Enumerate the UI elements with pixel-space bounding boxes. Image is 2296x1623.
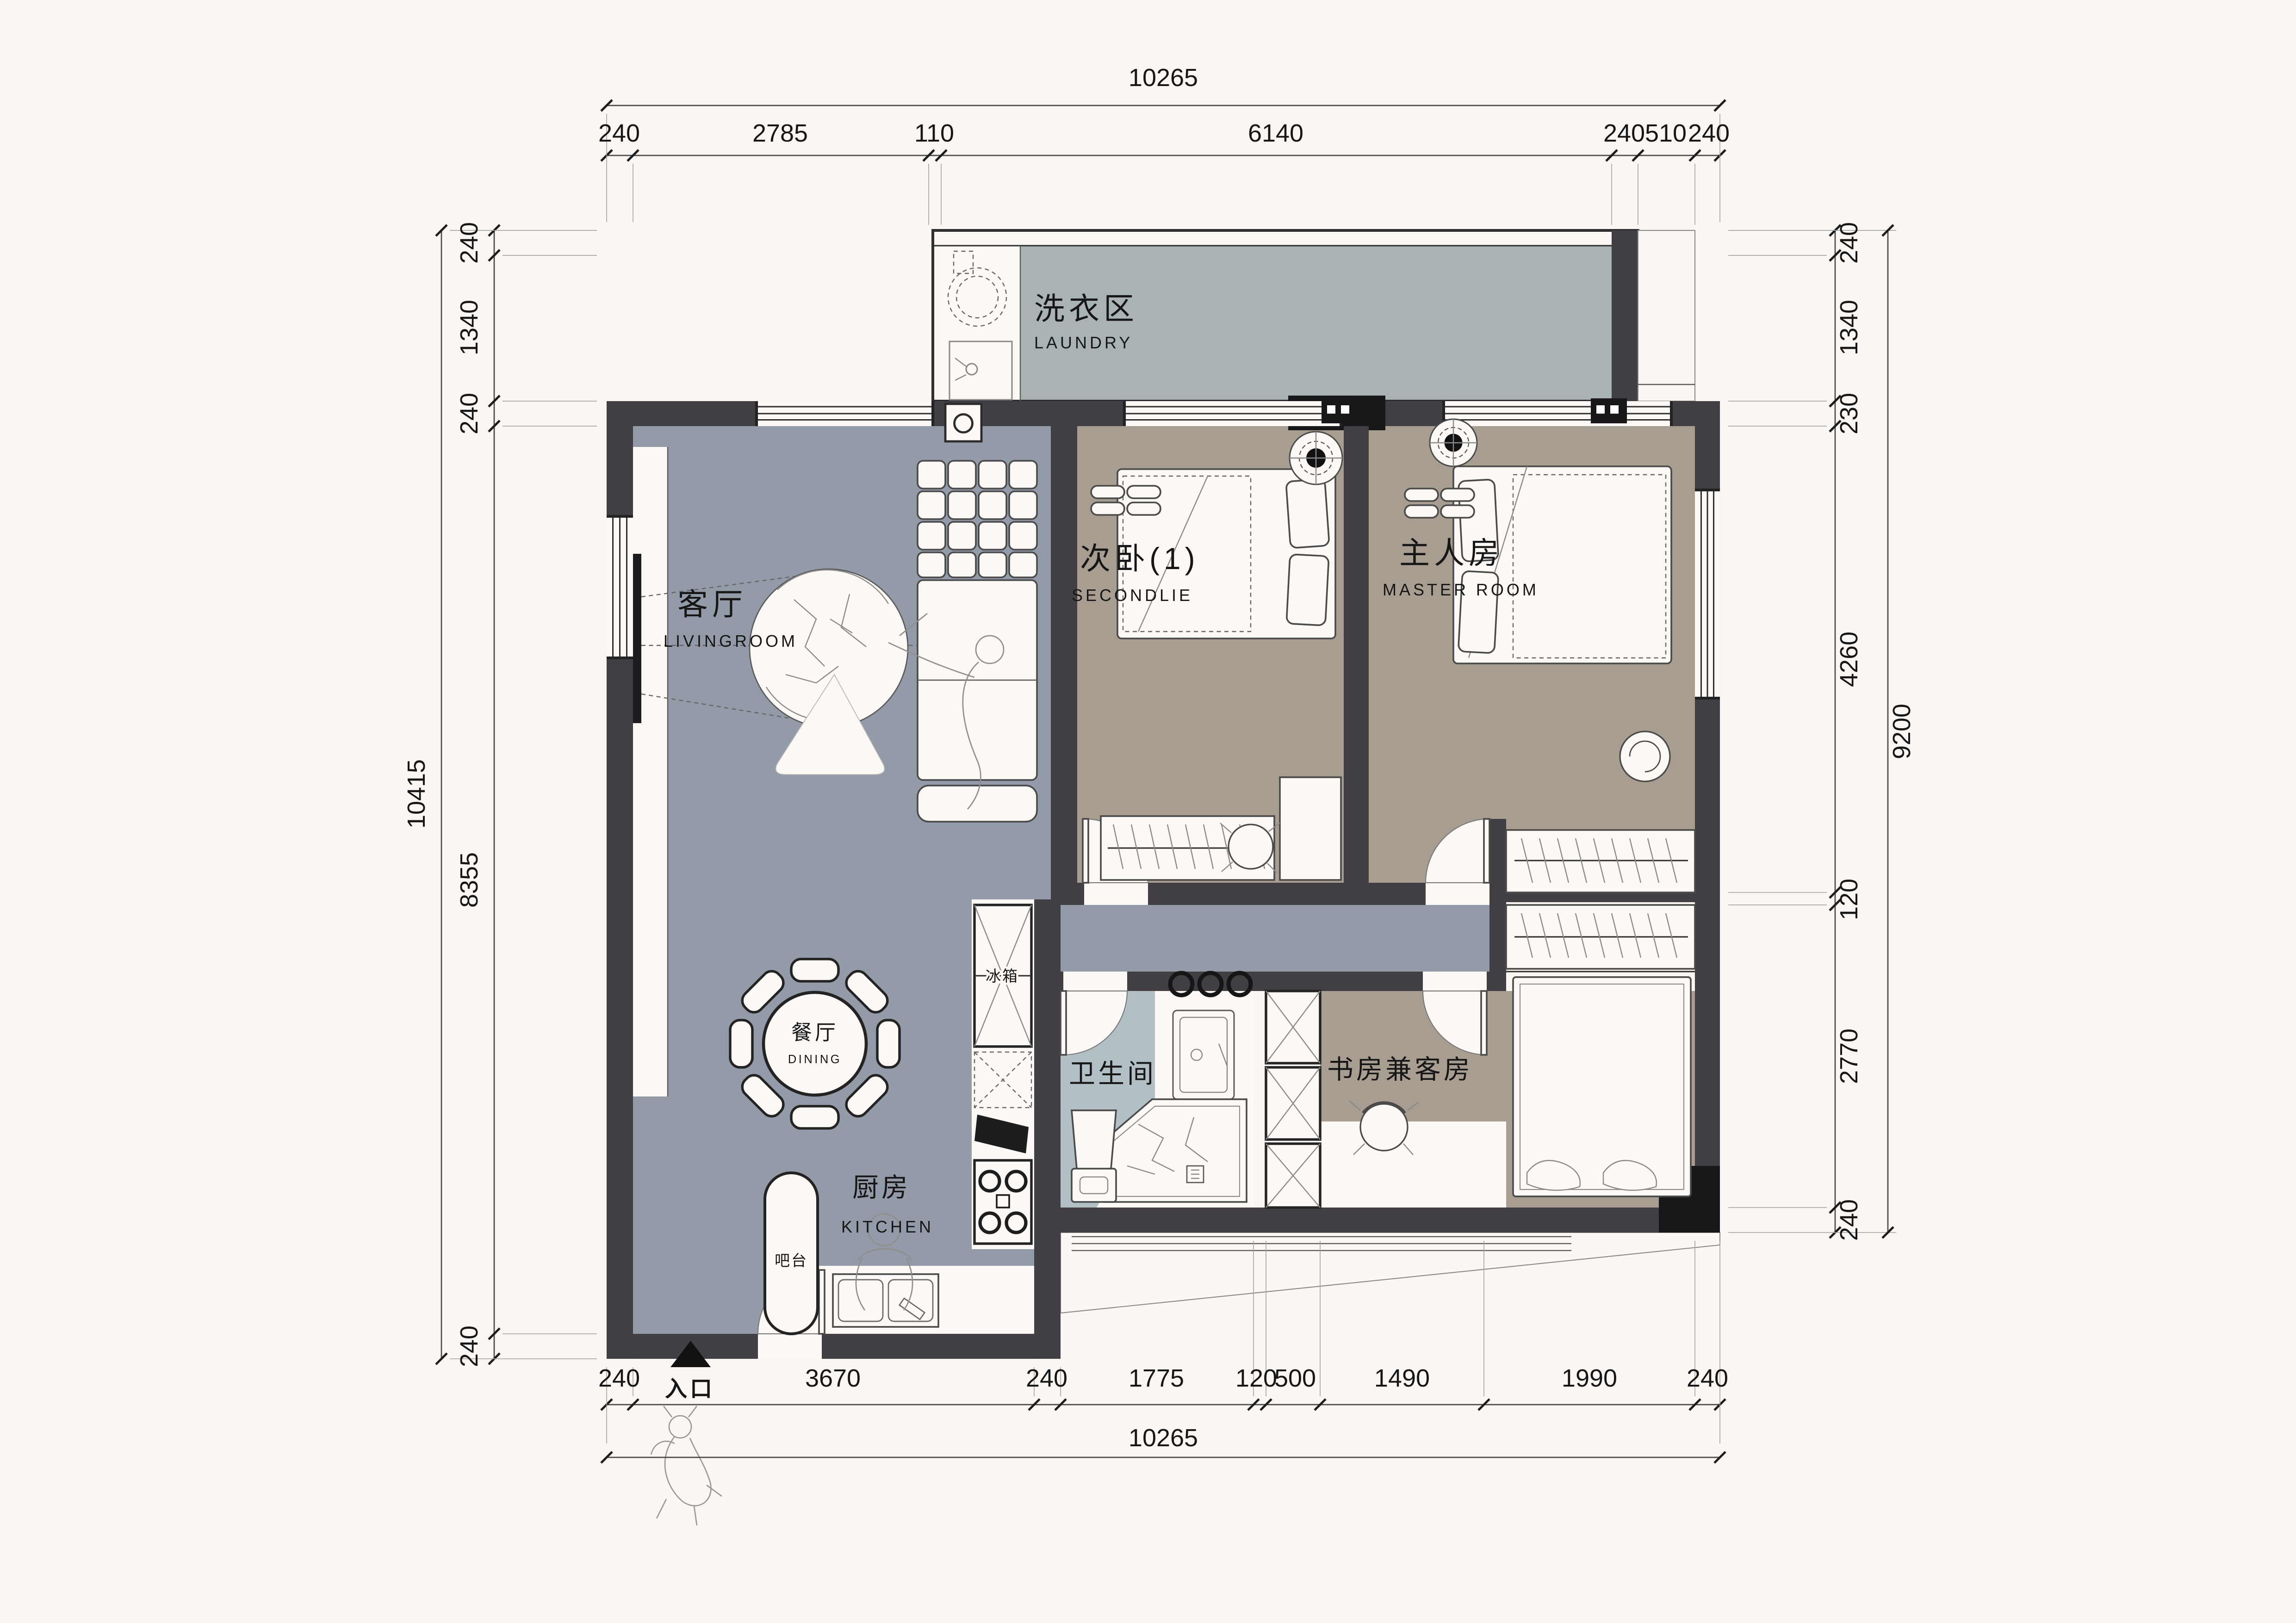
study-label: 书房兼客房 [1327, 1055, 1473, 1084]
bottom-seg-2: 240 [1026, 1364, 1067, 1392]
left-overall-value: 10415 [403, 759, 430, 829]
second-bedroom-label-en: SECONDLIE [1072, 586, 1193, 605]
study-desk-zone [1320, 1121, 1506, 1208]
entrance-group [651, 1341, 722, 1525]
right-seg-5: 2770 [1835, 1028, 1863, 1084]
top-seg-0: 240 [598, 119, 640, 147]
entrance-opening [758, 1334, 822, 1359]
second-bedroom-door-leaf [1083, 819, 1088, 883]
wall-vent-box-1 [1322, 398, 1358, 423]
bottom-seg-1: 3670 [805, 1364, 861, 1392]
bottom-left-wall [607, 1334, 1061, 1359]
terrace [1061, 1233, 1720, 1313]
fridge-label: 冰箱 [986, 967, 1019, 985]
bottom-seg-4: 120 [1235, 1364, 1277, 1392]
bar-label: 吧台 [775, 1252, 808, 1269]
dimensions-left: 10415 240 1340 240 8355 240 [403, 222, 597, 1367]
dimensions-top: 10265 240 2785 110 6140 240 510 240 [598, 64, 1730, 225]
second-bedroom-door-opening [1084, 883, 1148, 905]
vent-square-2b [1610, 405, 1619, 414]
hallway-tall-cabinet [1266, 991, 1320, 1208]
kitchen-sink [833, 1274, 938, 1327]
floor-plan-drawing: 洗衣区 LAUNDRY 客厅 LIVINGROOM 次卧(1) SECONDLI… [0, 0, 2296, 1623]
dimensions-right: 240 1340 230 4260 120 2770 240 9200 [1728, 222, 1916, 1241]
vent-square-2a [1596, 405, 1605, 414]
right-seg-0: 240 [1835, 222, 1863, 264]
bottom-seg-7: 1990 [1562, 1364, 1617, 1392]
laundry-right-wall [1612, 230, 1638, 401]
bottom-seg-3: 1775 [1129, 1364, 1184, 1392]
vent-square-1b [1341, 405, 1349, 414]
right-overall-value: 9200 [1888, 704, 1916, 759]
hallway-floor [1051, 899, 1506, 972]
left-seg-3: 8355 [455, 852, 483, 908]
right-seg-4: 120 [1835, 879, 1863, 920]
entrance-label: 入口 [665, 1377, 715, 1401]
top-overall-value: 10265 [1129, 64, 1198, 92]
bathroom-door-opening [1063, 972, 1127, 991]
second-bedroom-desk [1280, 777, 1341, 880]
kitchen-bathroom-wall [1034, 899, 1061, 1359]
left-seg-1: 1340 [455, 300, 483, 355]
kitchen-label-en: KITCHEN [841, 1217, 934, 1236]
bottom-seg-5: 500 [1274, 1364, 1316, 1392]
dining-label-zh: 餐厅 [791, 1021, 838, 1044]
left-seg-2: 240 [455, 393, 483, 434]
closet-thin-wall [1506, 892, 1695, 902]
tv-icon [633, 554, 641, 723]
second-bed-pillow-1 [1286, 479, 1329, 548]
left-seg-0: 240 [455, 222, 483, 264]
closet-side-stub [1489, 819, 1506, 991]
laundry-label-zh: 洗衣区 [1034, 291, 1138, 326]
bathroom-label: 卫生间 [1069, 1059, 1156, 1089]
living-bedroom-wall [1051, 426, 1077, 883]
bottom-right-wall [1034, 1208, 1720, 1233]
master-door-leaf [1484, 819, 1489, 883]
top-windows [757, 398, 1671, 426]
top-seg-4: 240 [1603, 119, 1645, 147]
bottom-seg-8: 240 [1687, 1364, 1728, 1392]
top-seg-1: 2785 [752, 119, 808, 147]
left-seg-4: 240 [455, 1326, 483, 1367]
bottom-overall-value: 10265 [1129, 1424, 1198, 1452]
top-seg-3: 6140 [1248, 119, 1303, 147]
bottom-seg-6: 1490 [1374, 1364, 1430, 1392]
wall-vent-box-2 [1591, 398, 1627, 423]
laundry-sink [949, 341, 1012, 400]
living-label-en: LIVINGROOM [664, 632, 798, 650]
laundry-floor-drain-box [945, 404, 981, 441]
ceiling-fan-icon-master [1430, 419, 1477, 466]
ac-platform [1638, 230, 1695, 401]
washbasin-counter [1173, 1010, 1234, 1099]
study-door-leaf [1481, 991, 1487, 1055]
second-bedroom-label-zh: 次卧(1) [1080, 541, 1199, 576]
study-door-opening [1423, 972, 1487, 991]
bedrooms-divider-wall [1344, 426, 1369, 883]
master-label-en: MASTER ROOM [1383, 580, 1539, 599]
right-seg-6: 240 [1835, 1199, 1863, 1241]
right-seg-3: 4260 [1835, 632, 1863, 687]
bathroom-door-leaf [1061, 991, 1066, 1055]
kitchen-label-zh: 厨房 [852, 1173, 911, 1202]
second-bed-pillow-2 [1286, 554, 1329, 626]
terrace-outline [1061, 1233, 1720, 1313]
master-label-zh: 主人房 [1399, 536, 1503, 570]
vent-square-1a [1327, 405, 1335, 414]
dining-label-en: DINING [788, 1053, 842, 1066]
swivel-chair-icon [1620, 731, 1670, 781]
top-seg-2: 110 [914, 119, 954, 147]
dog-illustration [651, 1406, 722, 1525]
living-label-zh: 客厅 [677, 587, 747, 621]
ceiling-fan-icon-second [1290, 432, 1342, 484]
floor-plan-canvas: 洗衣区 LAUNDRY 客厅 LIVINGROOM 次卧(1) SECONDLI… [0, 0, 2296, 1623]
tv-cabinet [633, 447, 668, 1096]
bottom-seg-0: 240 [598, 1364, 640, 1392]
toilet-icon [1072, 1110, 1116, 1202]
right-seg-1: 1340 [1835, 300, 1863, 355]
right-extension-lines [1728, 230, 1896, 1233]
master-door-opening [1426, 883, 1489, 905]
right-seg-2: 230 [1835, 393, 1863, 434]
laundry-label-en: LAUNDRY [1034, 333, 1133, 352]
sofa-ottoman [918, 786, 1037, 822]
top-seg-5: 510 [1645, 119, 1687, 147]
top-seg-6: 240 [1688, 119, 1730, 147]
entrance-door-leaf [819, 1270, 825, 1334]
